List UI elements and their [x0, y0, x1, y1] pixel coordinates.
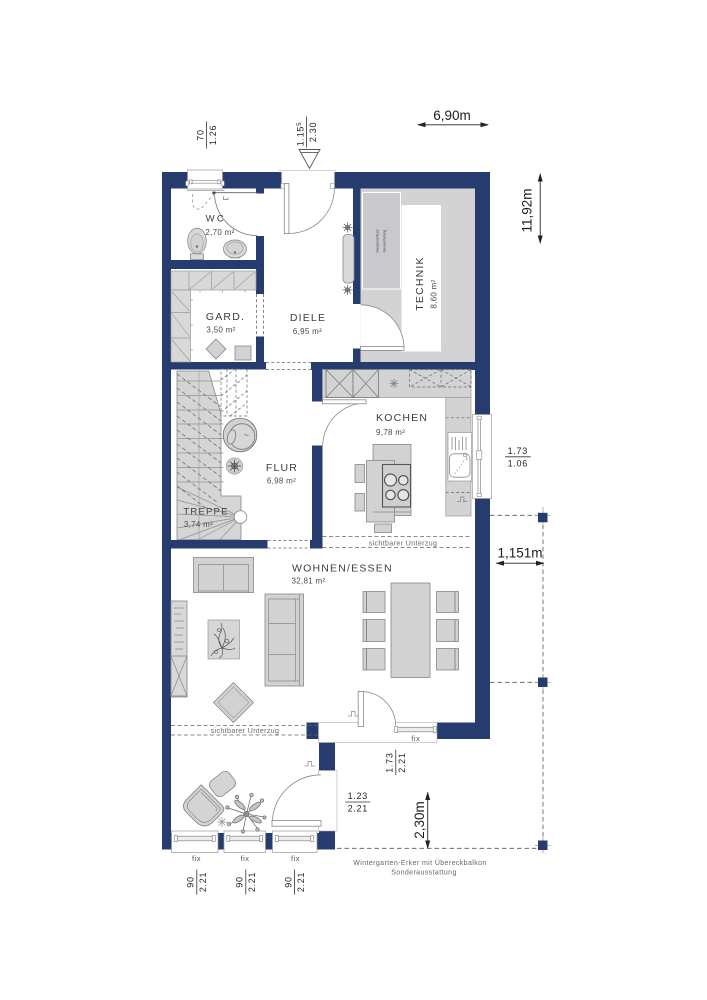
svg-text:2.21: 2.21	[397, 752, 407, 772]
svg-text:2.21: 2.21	[296, 872, 306, 892]
svg-text:11,92m: 11,92m	[520, 188, 535, 232]
svg-text:FLUR: FLUR	[266, 462, 298, 474]
svg-text:2.30: 2.30	[308, 122, 318, 142]
svg-text:2.21: 2.21	[247, 872, 257, 892]
svg-text:1.23: 1.23	[348, 791, 368, 801]
svg-text:70: 70	[195, 129, 205, 140]
svg-text:90: 90	[283, 876, 293, 887]
svg-text:sichtbarer Unterzug: sichtbarer Unterzug	[369, 540, 438, 547]
svg-text:32,81 m²: 32,81 m²	[292, 577, 326, 586]
svg-text:1.73: 1.73	[385, 752, 395, 772]
svg-text:6,98 m²: 6,98 m²	[267, 477, 296, 486]
svg-text:6,90m: 6,90m	[433, 108, 471, 123]
svg-text:TREPPE: TREPPE	[183, 506, 228, 517]
svg-text:2,30m: 2,30m	[412, 801, 427, 839]
svg-text:sichtbarer Unterzug: sichtbarer Unterzug	[211, 728, 280, 735]
svg-text:Sonderausstattung: Sonderausstattung	[391, 869, 457, 876]
svg-text:WC: WC	[206, 214, 226, 225]
svg-text:1.06: 1.06	[508, 458, 528, 468]
svg-text:fix: fix	[411, 734, 420, 743]
svg-text:Wintergarten-Erker mit Übereck: Wintergarten-Erker mit Übereckbalkon	[353, 859, 486, 867]
svg-text:KOCHEN: KOCHEN	[376, 412, 428, 424]
svg-text:90: 90	[235, 876, 245, 887]
svg-text:9,78 m²: 9,78 m²	[376, 428, 405, 437]
svg-text:2,70 m²: 2,70 m²	[205, 228, 234, 237]
svg-text:TECHNIK: TECHNIK	[414, 256, 426, 311]
svg-text:DIELE: DIELE	[290, 312, 326, 324]
svg-text:1.26: 1.26	[208, 125, 218, 145]
svg-text:1.73: 1.73	[508, 446, 528, 456]
svg-text:Hausanschluss: Hausanschluss	[376, 229, 380, 252]
svg-text:2.21: 2.21	[198, 872, 208, 892]
svg-text:Hausverteilung: Hausverteilung	[383, 230, 387, 253]
svg-text:1,151m: 1,151m	[497, 546, 542, 561]
svg-text:fix: fix	[192, 854, 201, 863]
svg-text:GARD.: GARD.	[206, 311, 245, 323]
svg-text:WOHNEN/ESSEN: WOHNEN/ESSEN	[292, 563, 393, 575]
svg-text:fix: fix	[241, 854, 250, 863]
svg-text:fix: fix	[291, 854, 300, 863]
svg-text:3,50 m²: 3,50 m²	[206, 326, 235, 335]
svg-text:90: 90	[186, 876, 196, 887]
svg-text:2.21: 2.21	[348, 803, 368, 813]
svg-text:6,95 m²: 6,95 m²	[293, 327, 322, 336]
svg-text:3,74 m²: 3,74 m²	[184, 520, 213, 529]
svg-text:8,60 m²: 8,60 m²	[430, 279, 439, 308]
